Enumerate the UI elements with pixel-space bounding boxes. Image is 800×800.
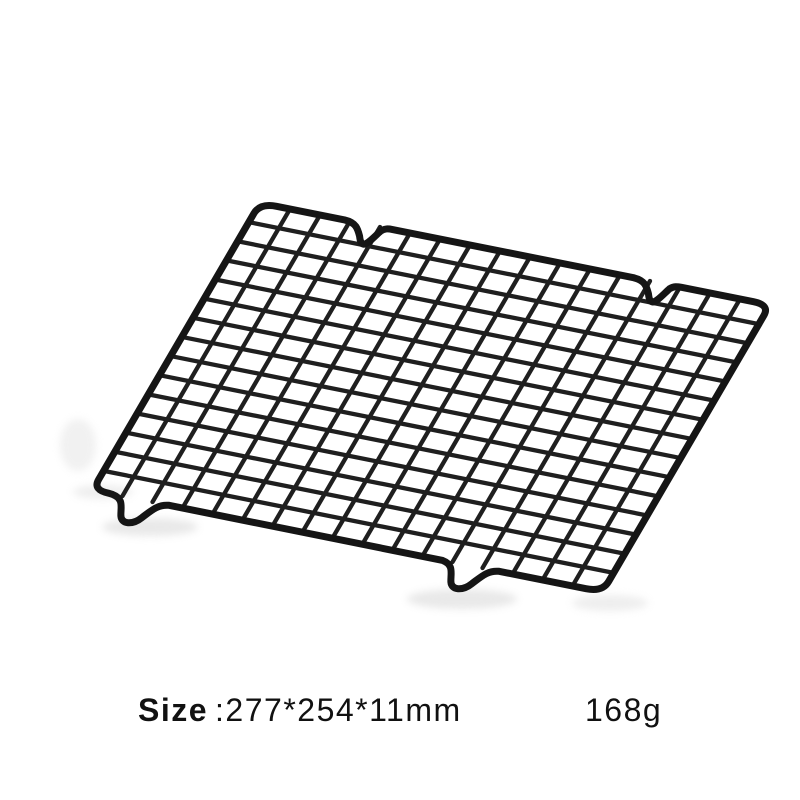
size-value: :277*254*11mm <box>215 692 462 728</box>
weight-value: 168g <box>585 692 662 729</box>
size-label: Size <box>138 692 208 728</box>
product-image: Size:277*254*11mm 168g <box>0 0 800 800</box>
cooling-rack-image <box>0 0 800 800</box>
size-caption: Size:277*254*11mm <box>138 692 462 729</box>
